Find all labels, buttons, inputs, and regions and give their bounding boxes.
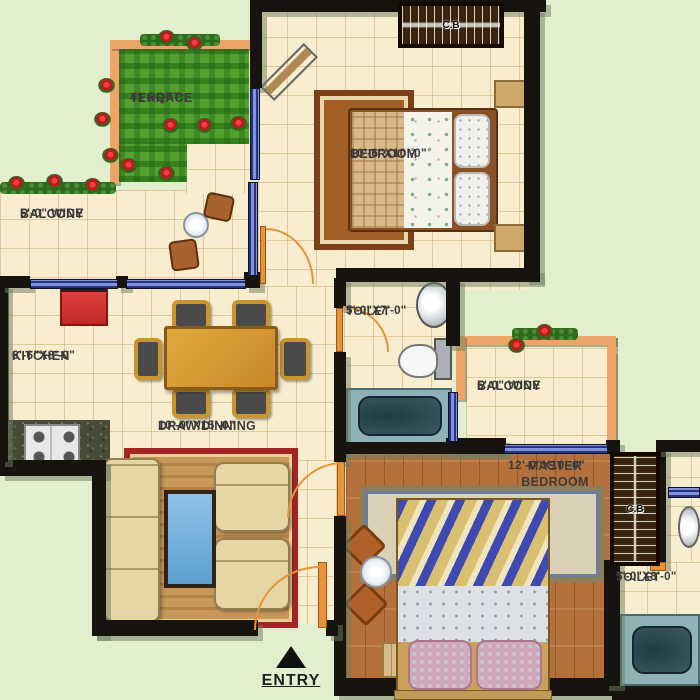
wall-toilet-top-left-a: [334, 278, 346, 308]
window-toilet-balcony-right: [448, 392, 458, 442]
wall-bedroom-toilet-divider: [336, 268, 540, 282]
cupboard-top-label: C.B: [442, 20, 459, 31]
coffee-table: [164, 490, 216, 588]
wall-master-left-b: [334, 516, 346, 684]
dining-table: [164, 326, 278, 390]
armchair: [214, 462, 290, 532]
wall-toilet-top-right: [446, 278, 460, 346]
cupboard-master-label: C.B: [626, 504, 643, 515]
sofa: [104, 458, 160, 622]
dining-chair: [134, 338, 162, 380]
balcony-right-rail-right: [607, 336, 616, 452]
draw-dining-dims: 10'-0"X15'-0": [158, 418, 235, 434]
window-balcony-left-south-a: [30, 279, 118, 289]
bathtub-top-inner: [358, 396, 442, 436]
master-pillow: [408, 640, 472, 690]
master-side-table: [360, 556, 392, 588]
window-balcony-left-south-b: [126, 279, 246, 289]
flower: [186, 36, 203, 51]
washbasin: [678, 506, 700, 548]
flower: [46, 174, 63, 189]
balcony-top-dims: 5'-0" WIDE: [20, 206, 84, 222]
wall-drawing-left-lower: [92, 460, 106, 636]
bedroom-dims: 10'-6"X10'-0": [350, 146, 427, 162]
flower: [84, 178, 101, 193]
bedroom-side-table: [494, 224, 526, 252]
dining-chair: [172, 388, 210, 418]
balcony-chair: [203, 191, 236, 222]
terrace-top-hedge: [140, 34, 220, 46]
wall-toilet-top-left-b: [334, 352, 346, 454]
wall-master-left-a: [334, 452, 346, 462]
flower: [120, 158, 137, 173]
toilet-top-dims: 5'-0"X7'-0": [346, 304, 407, 319]
window-terrace-east: [250, 88, 260, 180]
wall-toilet-bottom-top: [656, 440, 700, 452]
wall-kitchen-left: [0, 284, 8, 462]
flower: [162, 118, 179, 133]
flower: [508, 338, 525, 353]
master-bed-mattress: [398, 586, 548, 642]
terrace-dims: 41 SQFT.: [130, 90, 183, 106]
dining-chair: [280, 338, 310, 380]
window-balcony-left-east: [248, 182, 258, 276]
bedroom-pillow: [454, 172, 490, 226]
flower: [98, 78, 115, 93]
wall-terrace-window-stub: [250, 12, 262, 88]
balcony-chair: [168, 238, 200, 272]
bathtub-bottom-inner: [632, 626, 692, 674]
wall-bedroom-right: [524, 8, 540, 280]
toilet-wc-bowl: [398, 344, 438, 378]
cupboard-master: C.B: [610, 452, 660, 566]
wall-kitchen-bottom: [0, 460, 106, 476]
entry-label: ENTRY: [256, 672, 326, 690]
wall-toilet-bottom-edge: [612, 686, 700, 700]
master-bed-blanket: [398, 500, 548, 588]
floor-balcony-left-walkway: [186, 140, 250, 194]
cupboard-top: C.B: [398, 2, 504, 48]
bedroom-side-table: [494, 80, 526, 108]
flower: [158, 30, 175, 45]
flower: [102, 148, 119, 163]
kitchen-dims: 6'-6"X8'-0": [12, 348, 75, 364]
wall-balcony-sill-a: [0, 276, 30, 288]
window-master-balcony: [504, 444, 608, 454]
flower: [230, 116, 247, 131]
flower: [196, 118, 213, 133]
floor-plan: C.B C.B TERRACE 41 SQFT. BALCON: [0, 0, 700, 700]
dining-chair: [232, 388, 270, 418]
balcony-right-dims: 5'-0" WIDE: [477, 378, 541, 394]
window-toilet-bottom-east: [668, 487, 700, 498]
entry-arrow-icon: [276, 646, 306, 668]
bedroom-pillow: [454, 114, 490, 168]
master-pillow: [476, 640, 542, 690]
washing-machine: [60, 286, 108, 326]
flower: [8, 176, 25, 191]
wall-drawing-bottom: [92, 620, 258, 636]
door-toilet-top: [336, 308, 343, 352]
flower: [158, 166, 175, 181]
flower: [536, 324, 553, 339]
flower: [94, 112, 111, 127]
master-headboard: [394, 690, 552, 700]
toilet-bottom-dims: 5'-0"X8'-0": [616, 570, 677, 585]
master-bedroom-dims: 12'-0"X10'-0": [508, 458, 585, 474]
bedroom-bed-plaid: [352, 112, 404, 228]
bedroom-bed-sheet: [404, 112, 452, 228]
wall-entry-right-stub: [326, 620, 338, 636]
floor-balcony-right: [466, 348, 612, 446]
